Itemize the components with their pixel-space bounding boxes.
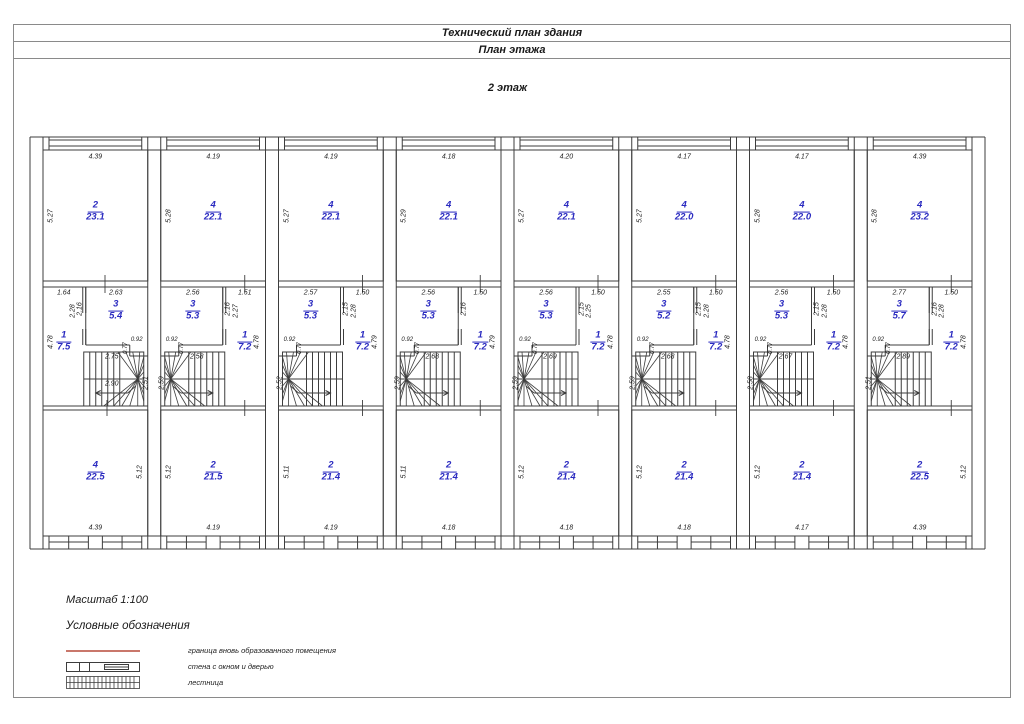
dimension-label: 0.92 — [131, 337, 143, 343]
dimension-label: 5.28 — [872, 209, 879, 223]
dimension-label: 4.78 — [607, 335, 614, 349]
dimension-label: 2.16 — [77, 302, 84, 316]
dimension-label: 1.50 — [356, 290, 370, 297]
dimension-label: 4.39 — [89, 154, 103, 161]
dimension-label: 5.27 — [636, 209, 643, 223]
plan-line — [524, 379, 540, 406]
plan-line — [122, 379, 138, 406]
dimension-label: 5.28 — [754, 209, 761, 223]
dimension-label: 0.92 — [637, 337, 649, 343]
dimension-label: 1.50 — [944, 290, 958, 297]
room-number-area-label: 223.1 — [86, 201, 105, 224]
dimension-label: 4.39 — [913, 154, 927, 161]
dimension-label: 2.25 — [586, 304, 593, 318]
dimension-label: 2.16 — [225, 302, 232, 316]
legend-heading: Условные обозначения — [66, 620, 336, 632]
plan-line — [642, 379, 676, 406]
dimension-label: 1.50 — [827, 290, 841, 297]
plan-line — [760, 379, 776, 406]
dimension-label: 0.77 — [650, 342, 656, 354]
room-number-area-label: 422.1 — [204, 201, 223, 224]
dimension-label: 5.11 — [283, 465, 290, 478]
dimension-label: 1.50 — [591, 290, 605, 297]
legend-label-wall: стена с окном и дверью — [188, 662, 274, 671]
room-number-area-label: 423.2 — [910, 201, 929, 224]
dimension-label: 5.28 — [165, 209, 172, 223]
dimension-label: 2.59 — [159, 376, 166, 390]
dimension-label: 4.39 — [913, 525, 927, 532]
dimension-label: 5.12 — [165, 465, 172, 479]
new-boundary-line-symbol — [66, 650, 140, 652]
dimension-label: 5.27 — [519, 209, 526, 223]
legend: Масштаб 1:100 Условные обозначения грани… — [66, 594, 336, 692]
dimension-label: 4.19 — [324, 525, 338, 532]
dimension-label: 0.92 — [872, 337, 884, 343]
legend-row-stairs: лестница — [66, 676, 336, 689]
dimension-label: 0.77 — [415, 342, 421, 354]
dimension-label: 0.92 — [755, 337, 767, 343]
room-number-area-label: 17.5 — [56, 331, 71, 354]
dimension-label: 2.58 — [190, 354, 204, 361]
dimension-label: 4.79 — [372, 335, 379, 349]
dimension-label: 2.75 — [105, 354, 119, 361]
dimension-label: 0.92 — [284, 337, 296, 343]
dimension-label: 0.92 — [519, 337, 531, 343]
dimension-label: 4.19 — [324, 154, 338, 161]
plan-line — [289, 379, 305, 406]
dimension-label: 4.78 — [254, 335, 261, 349]
document-page: Технический план здания План этажа 2 эта… — [0, 0, 1024, 724]
plan-line — [877, 379, 893, 406]
dimension-label: 2.15 — [578, 302, 585, 316]
dimension-label: 0.92 — [166, 337, 178, 343]
plan-line — [877, 379, 911, 406]
room-number-area-label: 422.1 — [557, 201, 576, 224]
dimension-label: 0.77 — [886, 342, 892, 354]
dimension-label: 2.15 — [814, 302, 821, 316]
dimension-label: 5.12 — [636, 465, 643, 479]
dimension-label: 4.17 — [795, 525, 809, 532]
dimension-label: 2.56 — [775, 290, 789, 297]
room-number-area-label: 221.4 — [675, 461, 694, 484]
plan-line — [524, 379, 558, 406]
dimension-label: 2.28 — [69, 304, 76, 318]
dimension-label: 2.56 — [539, 290, 553, 297]
room-number-area-label: 17.2 — [473, 331, 488, 354]
dimension-label: 4.18 — [442, 525, 456, 532]
room-number-area-label: 35.3 — [185, 300, 200, 323]
plan-line — [406, 379, 440, 406]
dimension-label: 0.92 — [401, 337, 413, 343]
dimension-label: 2.28 — [350, 304, 357, 318]
plan-line — [406, 379, 422, 406]
dimension-label: 5.12 — [519, 465, 526, 479]
dimension-label: 4.78 — [960, 335, 967, 349]
stairs-symbol — [66, 676, 140, 689]
dimension-label: 5.12 — [754, 465, 761, 479]
room-number-area-label: 35.4 — [108, 300, 123, 323]
dimension-label: 2.69 — [543, 354, 557, 361]
room-number-area-label: 422.5 — [86, 461, 105, 484]
dimension-label: 4.19 — [206, 154, 220, 161]
room-number-area-label: 17.2 — [826, 331, 841, 354]
room-number-area-label: 17.2 — [237, 331, 252, 354]
dimension-label: 2.52 — [277, 376, 284, 390]
dimension-label: 2.90 — [105, 381, 119, 388]
dimension-label: 2.55 — [657, 290, 671, 297]
room-number-area-label: 221.4 — [439, 461, 458, 484]
dimension-label: 4.19 — [206, 525, 220, 532]
room-number-area-label: 35.3 — [538, 300, 553, 323]
dimension-label: 2.58 — [748, 376, 755, 390]
dimension-label: 5.11 — [401, 465, 408, 478]
dimension-label: 2.67 — [779, 354, 793, 361]
room-number-area-label: 17.2 — [590, 331, 605, 354]
dimension-label: 2.68 — [661, 354, 675, 361]
dimension-label: 2.57 — [304, 290, 318, 297]
dimension-label: 4.17 — [795, 154, 809, 161]
room-number-area-label: 422.1 — [322, 201, 341, 224]
plan-line — [171, 379, 205, 406]
dimension-label: 2.15 — [696, 302, 703, 316]
plan-line — [642, 379, 658, 406]
room-number-area-label: 422.1 — [439, 201, 458, 224]
dimension-label: 4.18 — [677, 525, 691, 532]
room-number-area-label: 221.4 — [793, 461, 812, 484]
dimension-label: 2.16 — [931, 302, 938, 316]
dimension-label: 0.77 — [123, 342, 129, 354]
dimension-label: 4.18 — [442, 154, 456, 161]
dimension-label: 4.78 — [48, 335, 55, 349]
dimension-label: 5.12 — [961, 465, 968, 479]
dimension-label: 1.51 — [238, 290, 252, 297]
room-number-area-label: 35.3 — [774, 300, 789, 323]
dimension-label: 2.59 — [512, 376, 519, 390]
legend-label-boundary: граница вновь образованного помещения — [188, 646, 336, 655]
dimension-label: 2.51 — [143, 376, 150, 390]
dimension-label: 1.64 — [57, 290, 71, 297]
room-number-area-label: 35.7 — [892, 300, 907, 323]
dimension-label: 2.77 — [892, 290, 906, 297]
dimension-label: 2.59 — [630, 376, 637, 390]
dimension-label: 4.79 — [489, 335, 496, 349]
dimension-label: 4.39 — [89, 525, 103, 532]
room-number-area-label: 35.3 — [303, 300, 318, 323]
dimension-label: 2.16 — [460, 302, 467, 316]
dimension-label: 2.63 — [109, 290, 123, 297]
dimension-label: 2.68 — [425, 354, 439, 361]
dimension-label: 0.77 — [297, 342, 303, 354]
dimension-label: 2.28 — [939, 304, 946, 318]
dimension-label: 4.18 — [560, 525, 574, 532]
room-number-area-label: 17.2 — [708, 331, 723, 354]
scale-label: Масштаб 1:100 — [66, 594, 336, 606]
dimension-label: 2.15 — [343, 302, 350, 316]
room-number-area-label: 17.2 — [355, 331, 370, 354]
room-number-area-label: 221.5 — [204, 461, 223, 484]
wall-window-door-symbol — [66, 661, 140, 673]
plan-line — [289, 379, 323, 406]
dimension-label: 2.59 — [394, 376, 401, 390]
legend-row-boundary: граница вновь образованного помещения — [66, 644, 336, 657]
dimension-label: 5.27 — [48, 209, 55, 223]
legend-row-wall: стена с окном и дверью — [66, 660, 336, 673]
dimension-label: 5.27 — [283, 209, 290, 223]
room-number-area-label: 221.4 — [322, 461, 341, 484]
dimension-label: 2.28 — [703, 304, 710, 318]
dimension-label: 4.20 — [560, 154, 574, 161]
dimension-label: 0.77 — [768, 342, 774, 354]
room-number-area-label: 222.5 — [910, 461, 929, 484]
plan-line — [760, 379, 794, 406]
dimension-label: 0.77 — [179, 342, 185, 354]
dimension-label: 2.56 — [421, 290, 435, 297]
dimension-label: 2.89 — [896, 354, 910, 361]
dimension-label: 2.51 — [865, 376, 872, 390]
dimension-label: 1.50 — [709, 290, 723, 297]
room-number-area-label: 35.3 — [421, 300, 436, 323]
dimension-label: 4.78 — [725, 335, 732, 349]
dimension-label: 5.29 — [401, 209, 408, 223]
dimension-label: 2.56 — [186, 290, 200, 297]
dimension-label: 5.12 — [136, 465, 143, 479]
dimension-label: 4.78 — [843, 335, 850, 349]
room-number-area-label: 17.2 — [944, 331, 959, 354]
dimension-label: 0.77 — [533, 342, 539, 354]
dimension-label: 2.28 — [821, 304, 828, 318]
room-number-area-label: 35.2 — [656, 300, 671, 323]
room-number-area-label: 422.0 — [675, 201, 694, 224]
room-number-area-label: 422.0 — [793, 201, 812, 224]
dimension-label: 4.17 — [677, 154, 691, 161]
legend-label-stairs: лестница — [188, 678, 223, 687]
dimension-label: 1.50 — [473, 290, 487, 297]
room-number-area-label: 221.4 — [557, 461, 576, 484]
plan-line — [171, 379, 187, 406]
dimension-label: 2.27 — [232, 304, 239, 318]
